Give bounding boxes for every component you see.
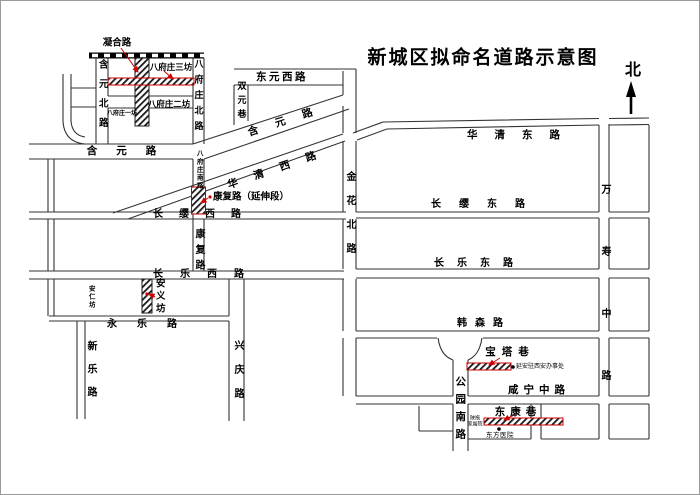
hatch-dongkang-lane bbox=[484, 418, 563, 425]
dot-yanan-office bbox=[511, 365, 515, 369]
label-gongyuan-south: 公园南路 bbox=[455, 376, 466, 446]
road-naming-map: 新城区拟命名道路示意图 北 凝合路 八府庄三坊 八府庄二坊 八府庄一坊 含元北路… bbox=[0, 0, 700, 495]
road-xinle bbox=[77, 321, 85, 419]
west-edge-road bbox=[48, 159, 54, 316]
label-shantuo-line2: 家属院 bbox=[467, 423, 482, 428]
label-dongfang-hospital: 东方医院 bbox=[486, 433, 514, 440]
label-dongkang-lane: 东康巷 bbox=[495, 407, 542, 418]
label-ninghelu: 凝合路 bbox=[103, 38, 132, 48]
dot-dongfang-hospital bbox=[497, 427, 501, 431]
label-anyi-fang: 安义坊 bbox=[154, 278, 164, 316]
hatch-bafuzhuang-sanfang bbox=[108, 78, 194, 85]
proposed-road-segments bbox=[108, 58, 563, 425]
north-arrow-icon bbox=[626, 81, 636, 114]
label-changle-west: 长乐西路 bbox=[153, 270, 261, 280]
dot-kangfu-extension bbox=[208, 195, 211, 198]
label-changle-east: 长乐东路 bbox=[434, 259, 526, 269]
label-bafuzhuang-north: 八府庄北路 bbox=[194, 59, 203, 137]
hatch-ninghelu bbox=[135, 58, 149, 126]
label-wanshou-middle: 万寿中路 bbox=[599, 184, 609, 432]
label-shuangyuan-lane: 双元巷 bbox=[237, 81, 246, 123]
compass-north-label: 北 bbox=[625, 63, 641, 79]
page-title: 新城区拟命名道路示意图 bbox=[367, 49, 598, 68]
label-huaqing-east: 华清东路 bbox=[467, 130, 577, 141]
label-jinhua-north: 金花北路 bbox=[344, 171, 354, 267]
label-yongle: 永乐路 bbox=[107, 320, 197, 330]
label-hanyuan-west: 含元路 bbox=[87, 146, 176, 157]
hatch-baota-lane bbox=[467, 363, 511, 370]
label-bafuzhuang-erfang: 八府庄二坊 bbox=[148, 100, 191, 109]
label-xingqing: 兴庆路 bbox=[232, 340, 242, 412]
label-dongyuan-west: 东元西路 bbox=[256, 72, 308, 83]
label-bafuzhuang-sanfang: 八府庄三坊 bbox=[150, 63, 193, 72]
label-bafuzhuang-yifang: 八府庄一坊 bbox=[107, 111, 137, 117]
label-baota-lane: 宝塔巷 bbox=[485, 347, 535, 358]
topleft-minor-streets bbox=[63, 74, 96, 144]
label-hansen: 韩森路 bbox=[457, 319, 511, 329]
dot-anyi-fang bbox=[145, 292, 148, 295]
label-hanyuan-north: 含元北路 bbox=[97, 59, 107, 137]
label-kangfu-extension: 康复路（延伸段） bbox=[213, 192, 289, 202]
label-xianning-middle: 咸宁中路 bbox=[508, 385, 570, 396]
label-xinle: 新乐路 bbox=[85, 341, 95, 410]
label-changying-west: 长缨西路 bbox=[153, 210, 257, 220]
label-changying-east: 长缨东路 bbox=[431, 200, 543, 210]
label-bafuzhuang-south: 八府庄南路 bbox=[195, 150, 202, 190]
label-anren-fang: 安仁坊 bbox=[87, 285, 94, 309]
label-yanan-office: 延安驻西安办事处 bbox=[516, 364, 564, 370]
hatch-anyi-fang bbox=[142, 279, 152, 313]
